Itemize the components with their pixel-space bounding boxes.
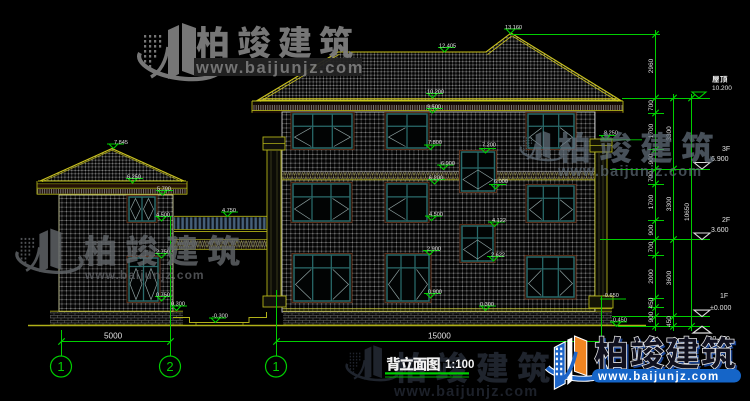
svg-text:-0.650: -0.650 <box>603 293 619 299</box>
svg-text:2F: 2F <box>722 217 730 224</box>
svg-text:0.750: 0.750 <box>156 293 170 299</box>
svg-text:7.800: 7.800 <box>428 140 442 146</box>
svg-text:-0.300: -0.300 <box>212 314 228 320</box>
svg-text:450: 450 <box>648 297 655 308</box>
svg-text:450: 450 <box>666 316 673 327</box>
svg-text:1: 1 <box>272 359 279 374</box>
svg-text:7.200: 7.200 <box>482 143 496 149</box>
svg-text:6.000: 6.000 <box>494 179 508 185</box>
svg-text:1:100: 1:100 <box>445 359 474 371</box>
svg-text:700: 700 <box>648 100 655 111</box>
svg-text:12.405: 12.405 <box>439 44 456 50</box>
svg-text:5000: 5000 <box>104 332 123 341</box>
svg-text:2960: 2960 <box>648 58 655 73</box>
svg-text:4.750: 4.750 <box>222 208 236 214</box>
svg-text:6.250: 6.250 <box>127 175 141 181</box>
svg-text:2.900: 2.900 <box>427 247 441 253</box>
svg-text:6.200: 6.200 <box>429 176 443 182</box>
svg-text:0.300: 0.300 <box>171 302 185 308</box>
svg-text:1: 1 <box>57 359 64 374</box>
svg-text:5.700: 5.700 <box>157 187 171 193</box>
svg-text:4.500: 4.500 <box>156 213 170 219</box>
svg-text:6.900: 6.900 <box>441 161 455 167</box>
svg-text:7.845: 7.845 <box>114 140 128 146</box>
svg-text:3.600: 3.600 <box>711 227 729 234</box>
svg-text:10650: 10650 <box>684 203 691 221</box>
svg-text:www.baijunjz.com: www.baijunjz.com <box>393 384 538 400</box>
svg-text:±0.000: ±0.000 <box>710 305 731 312</box>
svg-text:www.baijunjz.com: www.baijunjz.com <box>84 268 205 282</box>
svg-text:10.200: 10.200 <box>712 85 732 92</box>
svg-text:900: 900 <box>648 224 655 235</box>
svg-text:www.baijunjz.com: www.baijunjz.com <box>557 164 702 180</box>
svg-text:0.900: 0.900 <box>428 290 442 296</box>
svg-text:13.160: 13.160 <box>505 25 522 31</box>
svg-text:0.300: 0.300 <box>480 302 494 308</box>
svg-text:6.900: 6.900 <box>711 156 729 163</box>
svg-text:3F: 3F <box>722 146 730 153</box>
svg-text:2000: 2000 <box>648 269 655 284</box>
svg-text:15000: 15000 <box>428 332 451 341</box>
svg-text:10.200: 10.200 <box>427 90 444 96</box>
svg-text:www.baijunjz.com: www.baijunjz.com <box>597 371 720 383</box>
svg-text:-0.450: -0.450 <box>611 318 627 324</box>
svg-text:700: 700 <box>648 241 655 252</box>
svg-text:4.122: 4.122 <box>492 218 506 224</box>
svg-text:3300: 3300 <box>666 196 673 211</box>
svg-text:2.622: 2.622 <box>491 253 505 259</box>
svg-text:3600: 3600 <box>666 270 673 285</box>
svg-text:www.baijunjz.com: www.baijunjz.com <box>195 59 364 77</box>
svg-text:9.500: 9.500 <box>427 105 441 111</box>
svg-text:1700: 1700 <box>648 194 655 209</box>
svg-text:4.500: 4.500 <box>429 212 443 218</box>
svg-text:900: 900 <box>648 311 655 322</box>
svg-text:2: 2 <box>166 359 173 374</box>
svg-text:1F: 1F <box>720 293 728 300</box>
